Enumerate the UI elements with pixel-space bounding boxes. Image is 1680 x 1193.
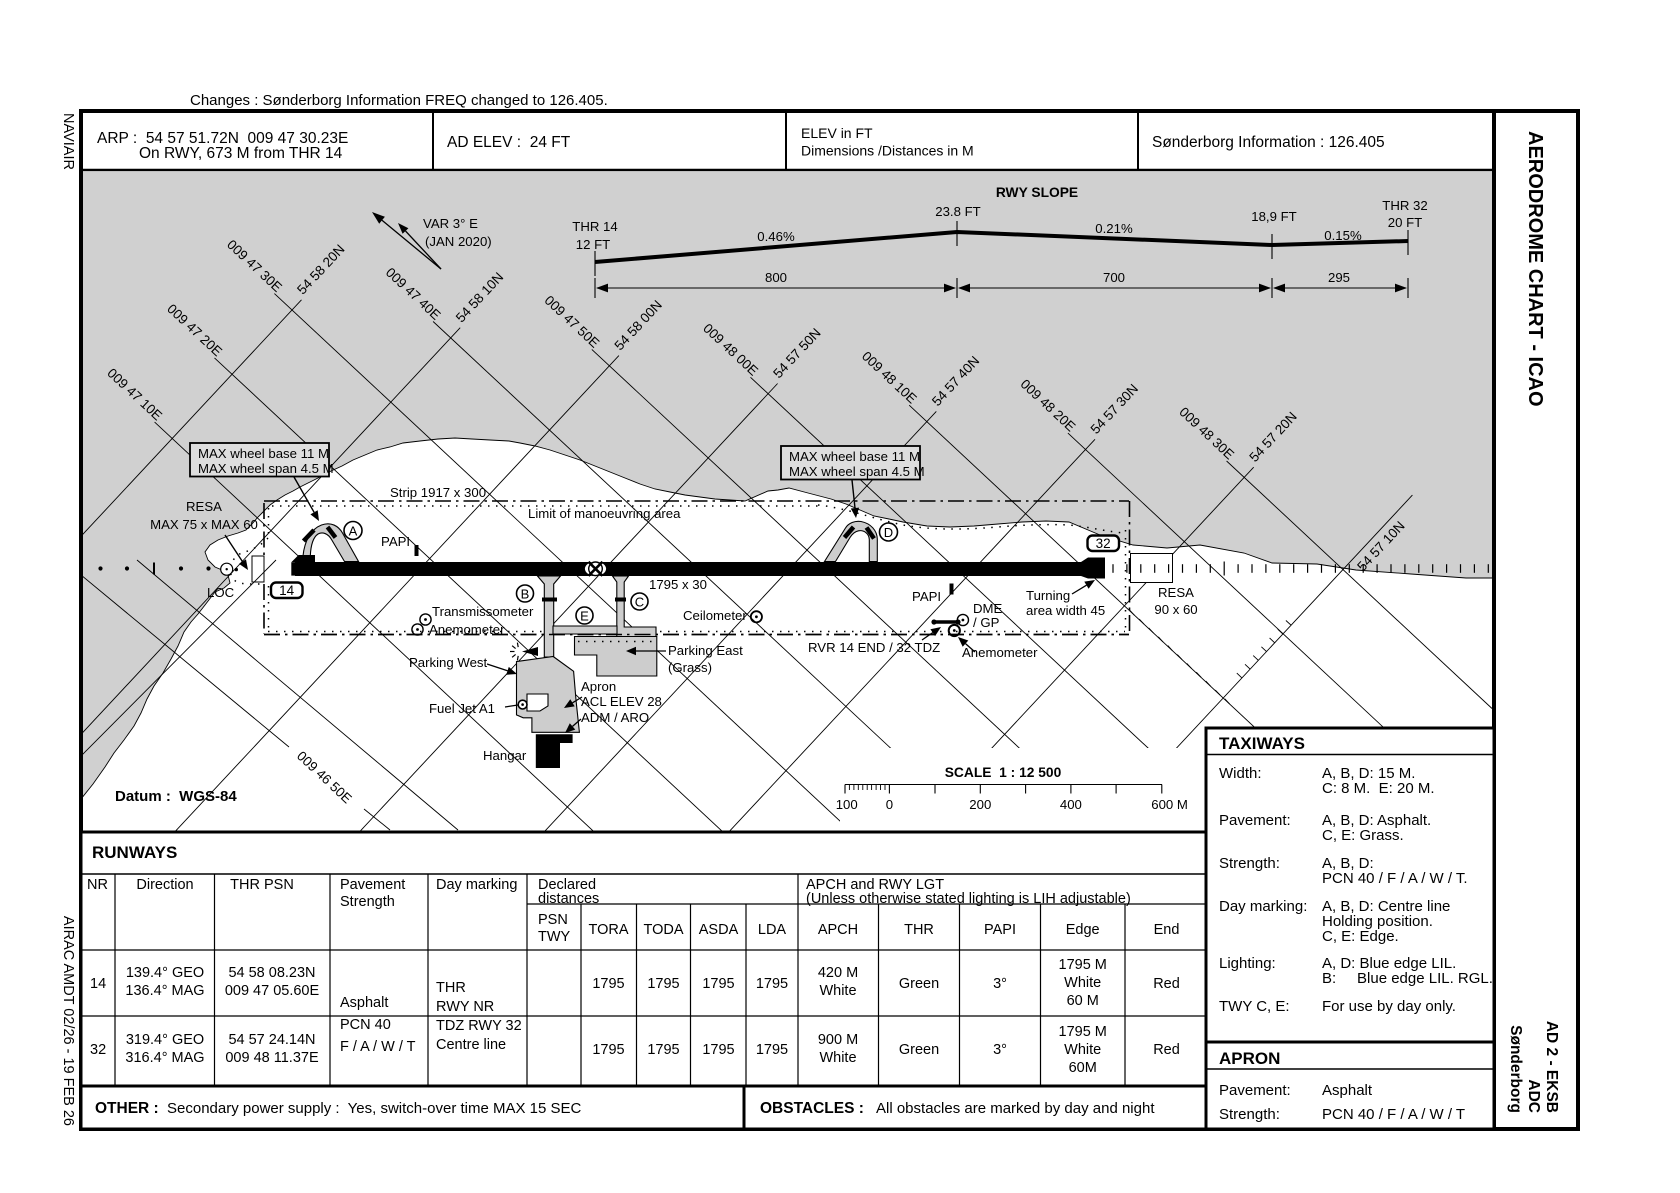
svg-text:(JAN 2020): (JAN 2020) [425, 234, 492, 249]
svg-text:18,9 FT: 18,9 FT [1251, 209, 1296, 224]
svg-text:1795: 1795 [647, 1042, 679, 1058]
svg-text:Hangar: Hangar [483, 748, 527, 763]
svg-text:C, E: Edge.: C, E: Edge. [1322, 928, 1399, 945]
svg-text:Strength:: Strength: [1219, 1106, 1280, 1123]
svg-text:PCN 40: PCN 40 [340, 1017, 391, 1033]
svg-text:PCN 40 / F / A / W / T: PCN 40 / F / A / W / T [1322, 1106, 1465, 1123]
svg-text:MAX wheel span 4.5 M: MAX wheel span 4.5 M [198, 461, 334, 476]
svg-text:009 48 11.37E: 009 48 11.37E [225, 1050, 319, 1066]
svg-text:/ GP: / GP [973, 615, 1000, 630]
svg-text:MAX wheel span 4.5 M: MAX wheel span 4.5 M [789, 464, 925, 479]
svg-text:APRON: APRON [1219, 1049, 1280, 1068]
svg-text:THR 32: THR 32 [1382, 198, 1427, 213]
svg-text:MAX wheel base 11 M: MAX wheel base 11 M [198, 446, 329, 461]
svg-text:400: 400 [1060, 797, 1082, 812]
svg-text:OTHER :: OTHER : [95, 1100, 159, 1117]
svg-text:NAVIAIR: NAVIAIR [60, 113, 76, 170]
svg-text:RESA: RESA [1158, 585, 1194, 600]
svg-text:Width:: Width: [1219, 765, 1262, 782]
svg-text:RESA: RESA [186, 499, 222, 514]
svg-text:TORA: TORA [588, 922, 628, 938]
svg-text:MAX wheel base 11 M: MAX wheel base 11 M [789, 449, 920, 464]
svg-text:Limit of manoeuvring area: Limit of manoeuvring area [528, 506, 681, 521]
svg-text:C: C [635, 595, 644, 610]
svg-text:Anemometer: Anemometer [962, 645, 1038, 660]
svg-text:Day marking: Day marking [436, 877, 517, 893]
svg-text:14: 14 [279, 583, 295, 598]
svg-text:60 M: 60 M [1067, 993, 1099, 1009]
svg-text:Asphalt: Asphalt [1322, 1082, 1373, 1099]
svg-text:For use by day only.: For use by day only. [1322, 998, 1456, 1015]
svg-text:420 M: 420 M [818, 965, 858, 981]
svg-text:White: White [1064, 1042, 1101, 1058]
svg-text:0.21%: 0.21% [1095, 221, 1133, 236]
svg-text:319.4° GEO: 319.4° GEO [126, 1032, 204, 1048]
svg-text:Sønderborg: Sønderborg [1507, 1025, 1524, 1113]
svg-text:White: White [819, 983, 856, 999]
svg-text:area width 45: area width 45 [1026, 603, 1105, 618]
svg-text:PSN: PSN [538, 912, 568, 928]
svg-text:C, E: Grass.: C, E: Grass. [1322, 827, 1404, 844]
svg-text:RVR 14 END / 32 TDZ: RVR 14 END / 32 TDZ [808, 640, 940, 655]
svg-text:D: D [884, 525, 893, 540]
svg-text:Centre line: Centre line [436, 1037, 506, 1053]
svg-text:(Unless otherwise stated light: (Unless otherwise stated lighting is LIH… [806, 891, 1131, 907]
svg-text:THR PSN: THR PSN [230, 877, 294, 893]
svg-text:32: 32 [1096, 536, 1111, 551]
svg-text:Pavement: Pavement [340, 877, 405, 893]
svg-text:1795 M: 1795 M [1059, 957, 1107, 973]
svg-text:Green: Green [899, 1042, 939, 1058]
svg-text:136.4° MAG: 136.4° MAG [125, 983, 204, 999]
svg-text:AERODROME CHART - ICAO: AERODROME CHART - ICAO [1524, 131, 1546, 407]
svg-text:ADC: ADC [1525, 1079, 1542, 1113]
svg-text:ACL ELEV 28: ACL ELEV 28 [581, 694, 662, 709]
svg-text:1795: 1795 [592, 1042, 624, 1058]
svg-text:White: White [1064, 975, 1101, 991]
svg-text:THR: THR [436, 980, 466, 996]
svg-text:Changes : Sønderborg Informati: Changes : Sønderborg Information FREQ ch… [190, 92, 608, 109]
svg-text:14: 14 [90, 976, 106, 992]
svg-text:B: B [521, 587, 530, 602]
svg-text:0.15%: 0.15% [1324, 228, 1362, 243]
svg-text:AIRAC AMDT 02/26 - 19 FEB 26: AIRAC AMDT 02/26 - 19 FEB 26 [60, 916, 76, 1126]
svg-text:900 M: 900 M [818, 1032, 858, 1048]
svg-text:End: End [1154, 922, 1180, 938]
svg-text:139.4° GEO: 139.4° GEO [126, 965, 204, 981]
svg-text:APCH: APCH [818, 922, 858, 938]
svg-text:1795: 1795 [702, 976, 734, 992]
svg-text:Parking West: Parking West [409, 655, 488, 670]
svg-text:AD 2 - EKSB: AD 2 - EKSB [1543, 1021, 1560, 1113]
svg-text:LOC: LOC [207, 585, 235, 600]
svg-text:Red: Red [1153, 976, 1180, 992]
svg-text:TDZ RWY 32: TDZ RWY 32 [436, 1018, 522, 1034]
svg-text:700: 700 [1103, 270, 1125, 285]
svg-text:Transmissometer: Transmissometer [432, 604, 534, 619]
svg-text:PAPI: PAPI [381, 534, 410, 549]
svg-text:60M: 60M [1069, 1060, 1097, 1076]
svg-text:PAPI: PAPI [912, 589, 941, 604]
svg-text:THR: THR [904, 922, 934, 938]
svg-text:Direction: Direction [136, 877, 193, 893]
svg-text:Fuel Jet A1: Fuel Jet A1 [429, 701, 495, 716]
svg-text:1795: 1795 [756, 976, 788, 992]
svg-text:ASDA: ASDA [699, 922, 739, 938]
svg-text:NR: NR [87, 877, 108, 893]
svg-text:1795: 1795 [702, 1042, 734, 1058]
svg-text:Strength: Strength [340, 894, 395, 910]
svg-text:All obstacles are marked by da: All obstacles are marked by day and nigh… [876, 1100, 1155, 1117]
svg-text:B: Blue edge LIL. RGL.: B: Blue edge LIL. RGL. [1322, 970, 1493, 987]
svg-text:A: A [349, 524, 358, 539]
svg-text:TWY C, E:: TWY C, E: [1219, 998, 1290, 1015]
svg-text:Edge: Edge [1066, 922, 1100, 938]
svg-text:Strip 1917 x 300: Strip 1917 x 300 [390, 485, 486, 500]
svg-text:295: 295 [1328, 270, 1350, 285]
svg-text:54 58 08.23N: 54 58 08.23N [228, 965, 315, 981]
svg-text:(Grass): (Grass) [668, 660, 712, 675]
svg-text:Turning: Turning [1026, 588, 1070, 603]
svg-text:23.8 FT: 23.8 FT [935, 204, 980, 219]
svg-text:Red: Red [1153, 1042, 1180, 1058]
svg-text:600 M: 600 M [1151, 797, 1188, 812]
svg-text:20 FT: 20 FT [1388, 215, 1422, 230]
svg-text:Green: Green [899, 976, 939, 992]
svg-text:32: 32 [90, 1042, 106, 1058]
svg-text:Day marking:: Day marking: [1219, 898, 1307, 915]
svg-text:ELEV in FT: ELEV in FT [801, 125, 873, 141]
svg-text:Datum : WGS-84: Datum : WGS-84 [115, 788, 237, 805]
svg-text:1795: 1795 [592, 976, 624, 992]
svg-text:White: White [819, 1050, 856, 1066]
svg-text:800: 800 [765, 270, 787, 285]
svg-text:Strength:: Strength: [1219, 855, 1280, 872]
svg-text:RWY NR: RWY NR [436, 999, 494, 1015]
svg-text:DME: DME [973, 601, 1003, 616]
svg-text:Sønderborg Information : 126.4: Sønderborg Information : 126.405 [1152, 134, 1385, 151]
svg-text:3°: 3° [993, 1042, 1007, 1058]
svg-text:1795: 1795 [647, 976, 679, 992]
svg-text:90 x 60: 90 x 60 [1154, 602, 1197, 617]
svg-text:Pavement:: Pavement: [1219, 1082, 1291, 1099]
svg-text:ADM / ARO: ADM / ARO [581, 710, 649, 725]
svg-text:12 FT: 12 FT [576, 237, 610, 252]
svg-text:LDA: LDA [758, 922, 787, 938]
svg-text:SCALE 1 : 12 500: SCALE 1 : 12 500 [945, 765, 1062, 780]
svg-text:VAR 3° E: VAR 3° E [423, 216, 478, 231]
svg-text:Pavement:: Pavement: [1219, 812, 1291, 829]
svg-text:009 47 05.60E: 009 47 05.60E [225, 983, 320, 999]
svg-text:200: 200 [969, 797, 991, 812]
svg-text:TAXIWAYS: TAXIWAYS [1219, 734, 1305, 753]
svg-text:RUNWAYS: RUNWAYS [92, 843, 177, 862]
svg-text:0: 0 [886, 797, 893, 812]
svg-text:1795 M: 1795 M [1059, 1024, 1107, 1040]
svg-text:OBSTACLES :: OBSTACLES : [760, 1100, 864, 1117]
svg-text:3°: 3° [993, 976, 1007, 992]
svg-text:Asphalt: Asphalt [340, 995, 388, 1011]
svg-text:RWY SLOPE: RWY SLOPE [996, 185, 1078, 200]
svg-text:C: 8 M. E: 20 M.: C: 8 M. E: 20 M. [1322, 780, 1435, 797]
svg-text:MAX 75 x MAX 60: MAX 75 x MAX 60 [150, 517, 258, 532]
svg-text:1795 x 30: 1795 x 30 [649, 577, 707, 592]
svg-text:Parking East: Parking East [668, 643, 743, 658]
svg-text:Lighting:: Lighting: [1219, 955, 1276, 972]
svg-text:0.46%: 0.46% [757, 229, 795, 244]
svg-text:1795: 1795 [756, 1042, 788, 1058]
svg-text:AD ELEV : 24 FT: AD ELEV : 24 FT [447, 134, 571, 151]
svg-text:distances: distances [538, 891, 599, 907]
svg-text:On RWY, 673 M from THR 14: On RWY, 673 M from THR 14 [139, 145, 343, 162]
svg-text:THR 14: THR 14 [572, 219, 617, 234]
svg-text:54 57 24.14N: 54 57 24.14N [228, 1032, 315, 1048]
svg-text:Dimensions /Distances in M: Dimensions /Distances in M [801, 143, 974, 159]
svg-text:Ceilometer: Ceilometer [683, 608, 747, 623]
svg-text:316.4° MAG: 316.4° MAG [125, 1050, 204, 1066]
svg-text:100: 100 [836, 797, 858, 812]
svg-text:TODA: TODA [643, 922, 683, 938]
svg-text:Secondary power supply : Yes,: Secondary power supply : Yes, switch-ove… [167, 1100, 582, 1117]
svg-text:PCN 40 / F / A / W / T.: PCN 40 / F / A / W / T. [1322, 870, 1468, 887]
svg-text:Apron: Apron [581, 679, 616, 694]
svg-text:PAPI: PAPI [984, 922, 1016, 938]
svg-text:E: E [580, 609, 589, 624]
svg-text:F / A / W / T: F / A / W / T [340, 1039, 416, 1055]
svg-text:TWY: TWY [538, 929, 571, 945]
